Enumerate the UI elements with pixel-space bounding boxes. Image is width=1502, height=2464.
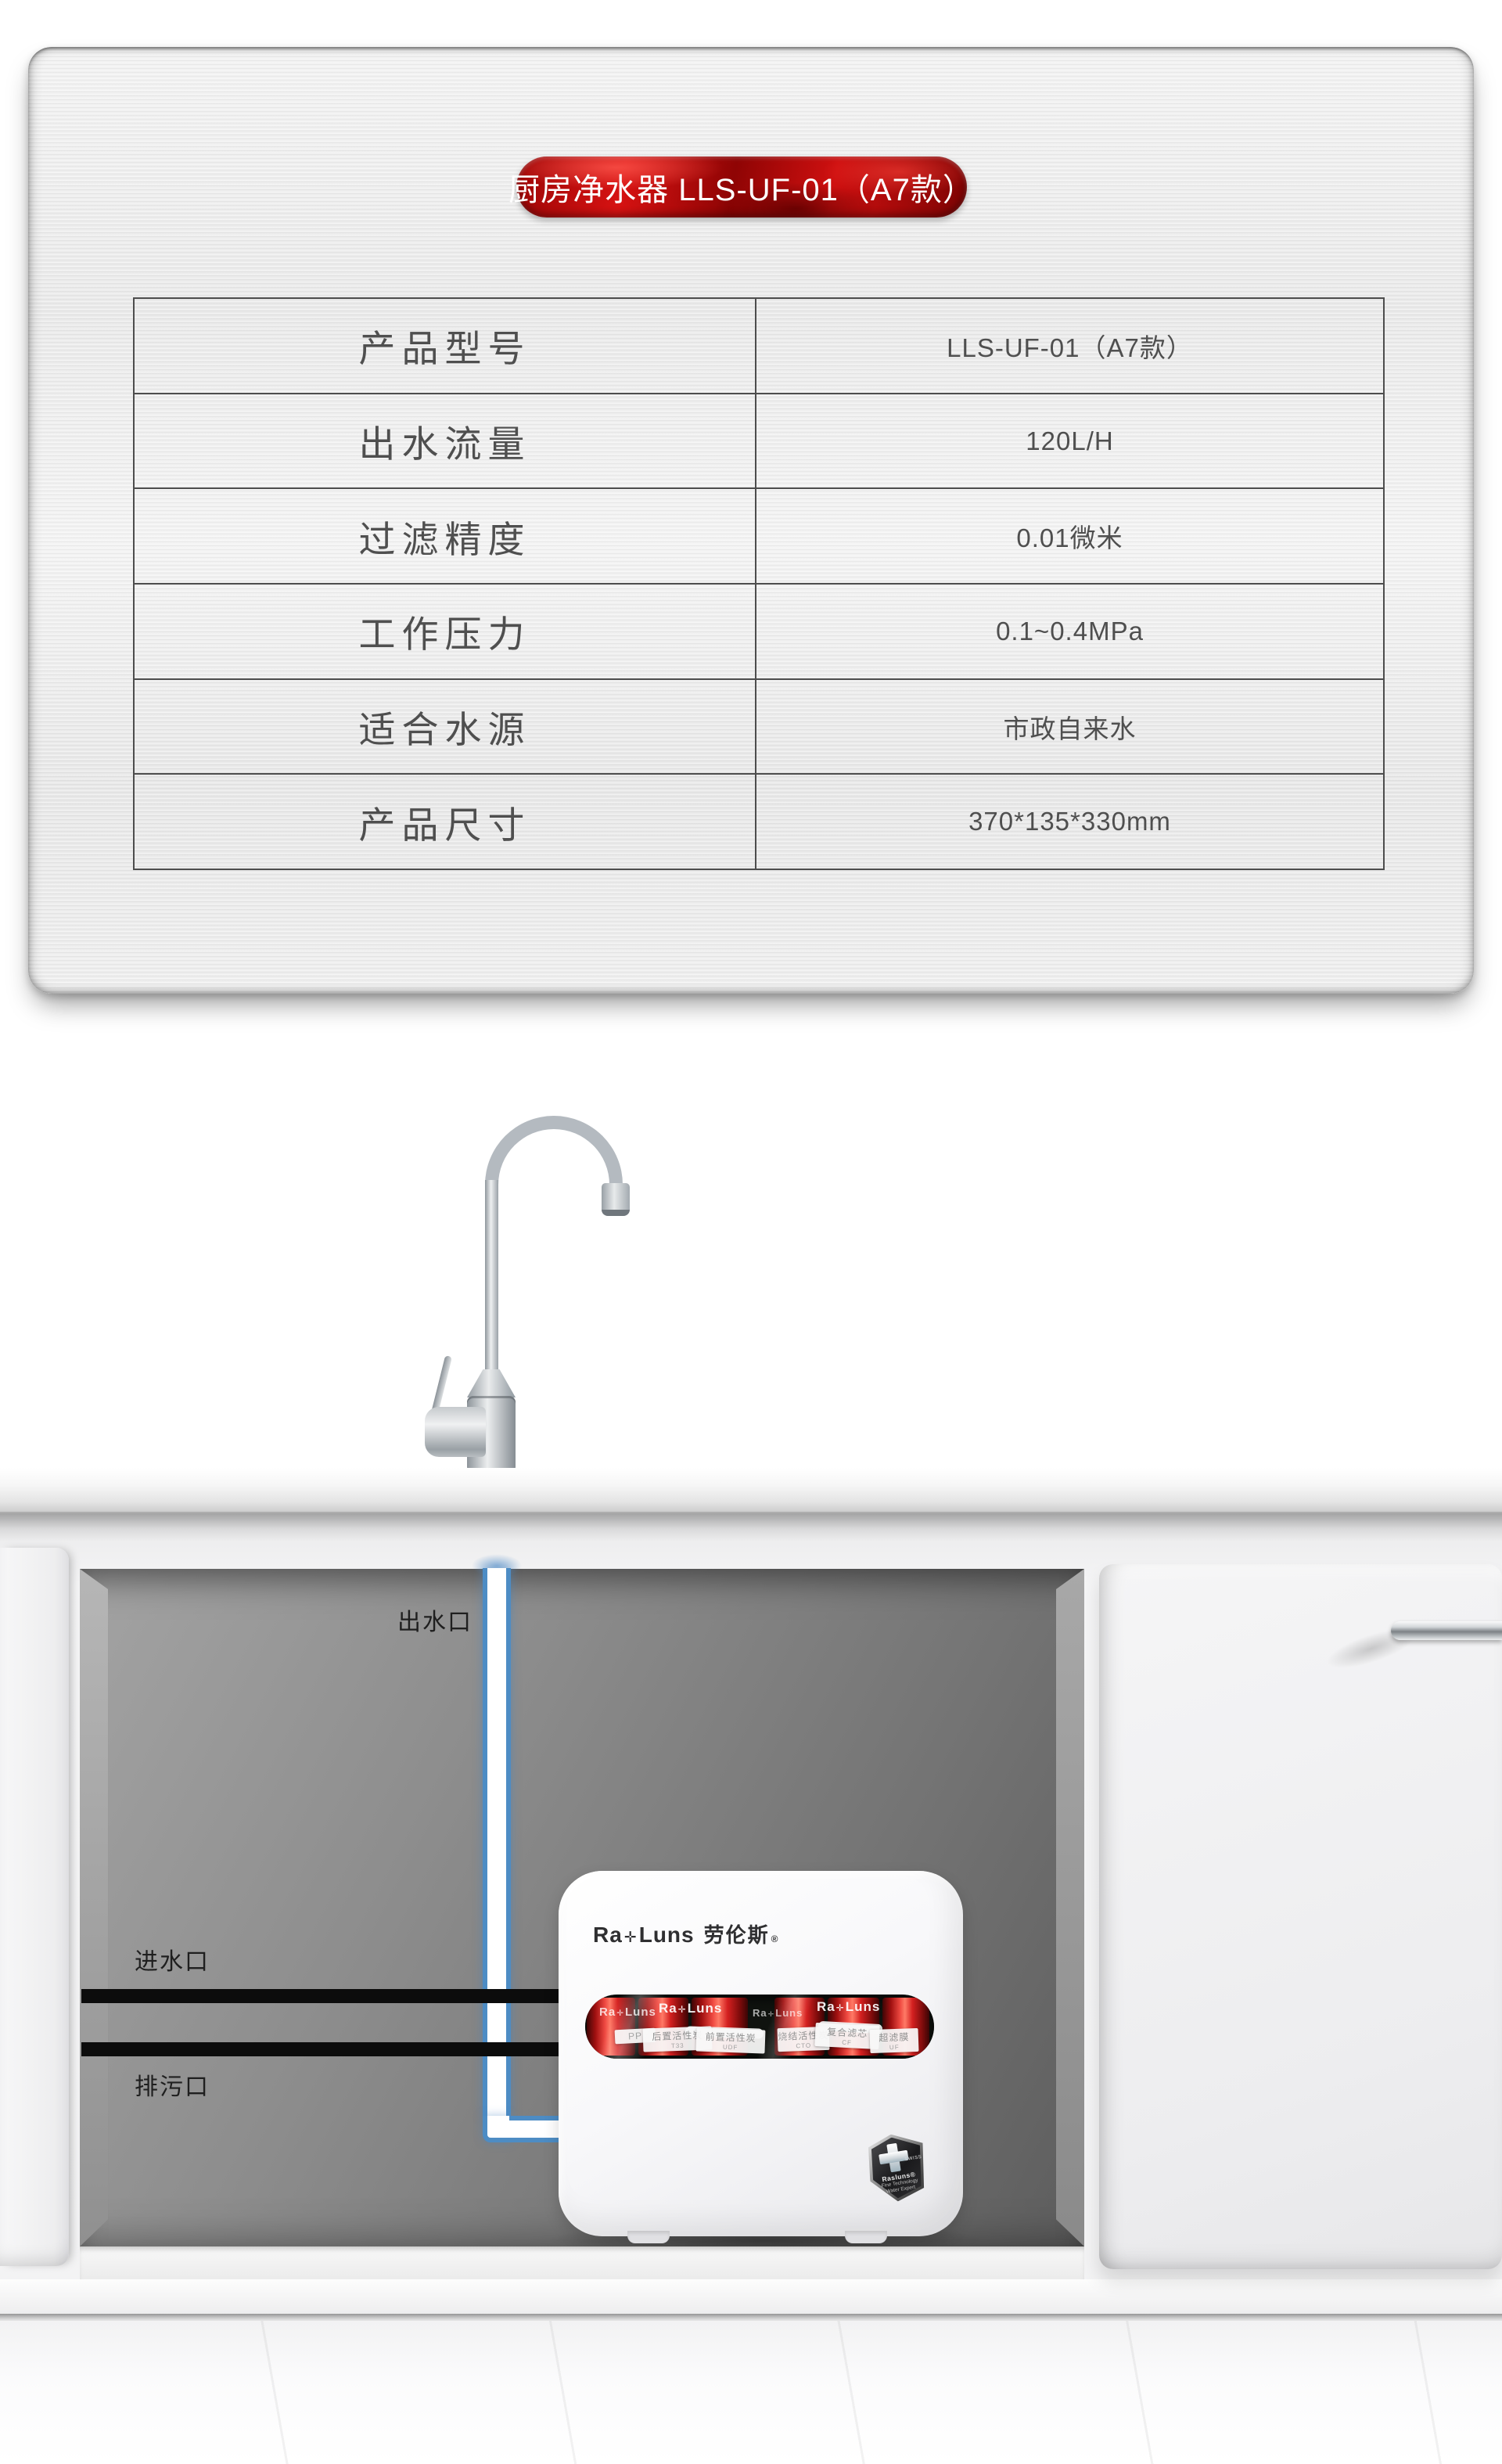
table-row: 适合水源 市政自来水 [135,680,1383,775]
quality-badge: SWISS Rasluns® Fine Technology Water Exp… [864,2130,932,2206]
brand-logo-cn: 劳伦斯 [704,1919,770,1948]
faucet-handle-body [425,1407,486,1457]
cabinet-inner-wall-right [1056,1569,1084,2246]
spec-label: 出水流量 [135,394,756,488]
cabinet-door-right [1099,1564,1502,2269]
table-row: 出水流量 120L/H [135,394,1383,490]
brand-logo-prefix: Ra [593,1923,623,1948]
cabinet-floor [80,2246,1084,2281]
spec-label: 产品尺寸 [135,775,756,869]
faucet-base-cone [467,1369,516,1397]
inlet-pipe [81,1989,563,2003]
spec-label: 工作压力 [135,585,756,678]
brand-logo: Ra✛Luns劳伦斯® [593,1919,778,1948]
spec-label: 适合水源 [135,680,756,774]
water-purifier-unit: Ra✛Luns劳伦斯® Ra✛Luns Ra✛Luns Ra✛Luns Ra✛L… [559,1871,963,2236]
registered-mark: ® [771,1933,779,1944]
faucet-handle-lever [431,1355,452,1415]
spec-value: 0.01微米 [756,489,1383,583]
cartridge-brand-logo: Ra✛Luns [659,2001,722,2016]
cabinet-base-rail [0,2279,1502,2315]
product-title-badge: 厨房净水器 LLS-UF-01（A7款） [516,156,967,218]
spec-value: 370*135*330mm [756,775,1383,869]
filter-window: Ra✛Luns Ra✛Luns Ra✛Luns Ra✛Luns PP 后置活性炭… [585,1995,934,2059]
spec-value: LLS-UF-01（A7款） [756,299,1383,393]
countertop [0,1468,1502,1513]
kitchen-floor [0,2321,1502,2464]
faucet-gooseneck [485,1116,623,1191]
cabinet-door-left [0,1548,69,2266]
drain-pipe [81,2042,563,2056]
purifier-foot [845,2231,887,2243]
spec-label: 过滤精度 [135,489,756,583]
table-row: 过滤精度 0.01微米 [135,489,1383,585]
spec-value: 市政自来水 [756,680,1383,774]
outlet-label: 出水口 [397,1602,473,1637]
cartridge-brand-logo: Ra✛Luns [817,1999,880,2015]
outlet-pipe-vertical [483,1568,511,2116]
brand-plus-icon: ✛ [624,1929,638,1947]
outlet-pipe-elbow [483,2116,511,2142]
faucet-riser-pipe [485,1180,498,1377]
table-row: 工作压力 0.1~0.4MPa [135,585,1383,680]
door-handle [1391,1621,1502,1640]
product-spec-page: 厨房净水器 LLS-UF-01（A7款） 产品型号 LLS-UF-01（A7款）… [0,0,1502,2464]
inlet-label: 进水口 [135,1942,210,1977]
brand-logo-suffix: Luns [639,1923,695,1948]
spec-value: 120L/H [756,394,1383,488]
counter-shadow [0,1513,1502,1541]
purifier-foot [627,2231,670,2243]
outlet-pipe-horizontal [509,2116,564,2142]
filter-label-chip: 超滤膜 UF [869,2028,918,2053]
spec-label: 产品型号 [135,299,756,393]
table-row: 产品尺寸 370*135*330mm [135,775,1383,869]
faucet-spout-tip [602,1183,630,1216]
cabinet-inner-wall-left [80,1569,108,2246]
filter-label-chip: 前置活性炭 UDF [696,2027,766,2053]
table-row: 产品型号 LLS-UF-01（A7款） [135,299,1383,394]
spec-value: 0.1~0.4MPa [756,585,1383,678]
drain-label: 排污口 [135,2067,210,2102]
product-title: 厨房净水器 LLS-UF-01（A7款） [508,164,975,210]
spec-table: 产品型号 LLS-UF-01（A7款） 出水流量 120L/H 过滤精度 0.0… [133,297,1385,870]
